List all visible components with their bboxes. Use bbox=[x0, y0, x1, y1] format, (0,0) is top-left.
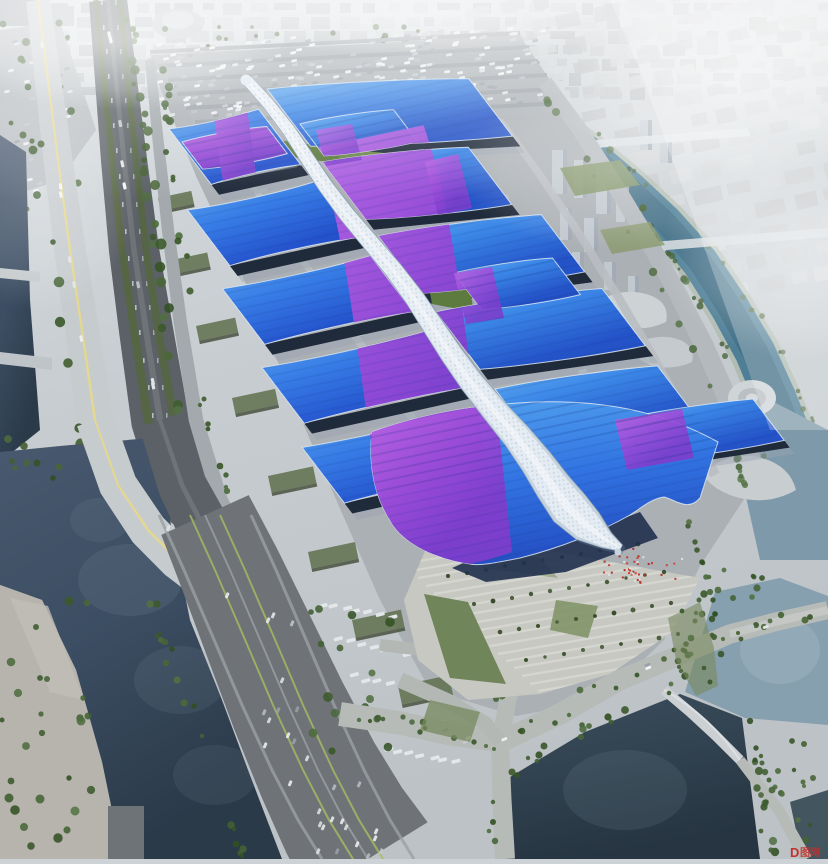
svg-text:图网: 图网 bbox=[800, 847, 820, 859]
svg-text:D: D bbox=[790, 845, 799, 859]
